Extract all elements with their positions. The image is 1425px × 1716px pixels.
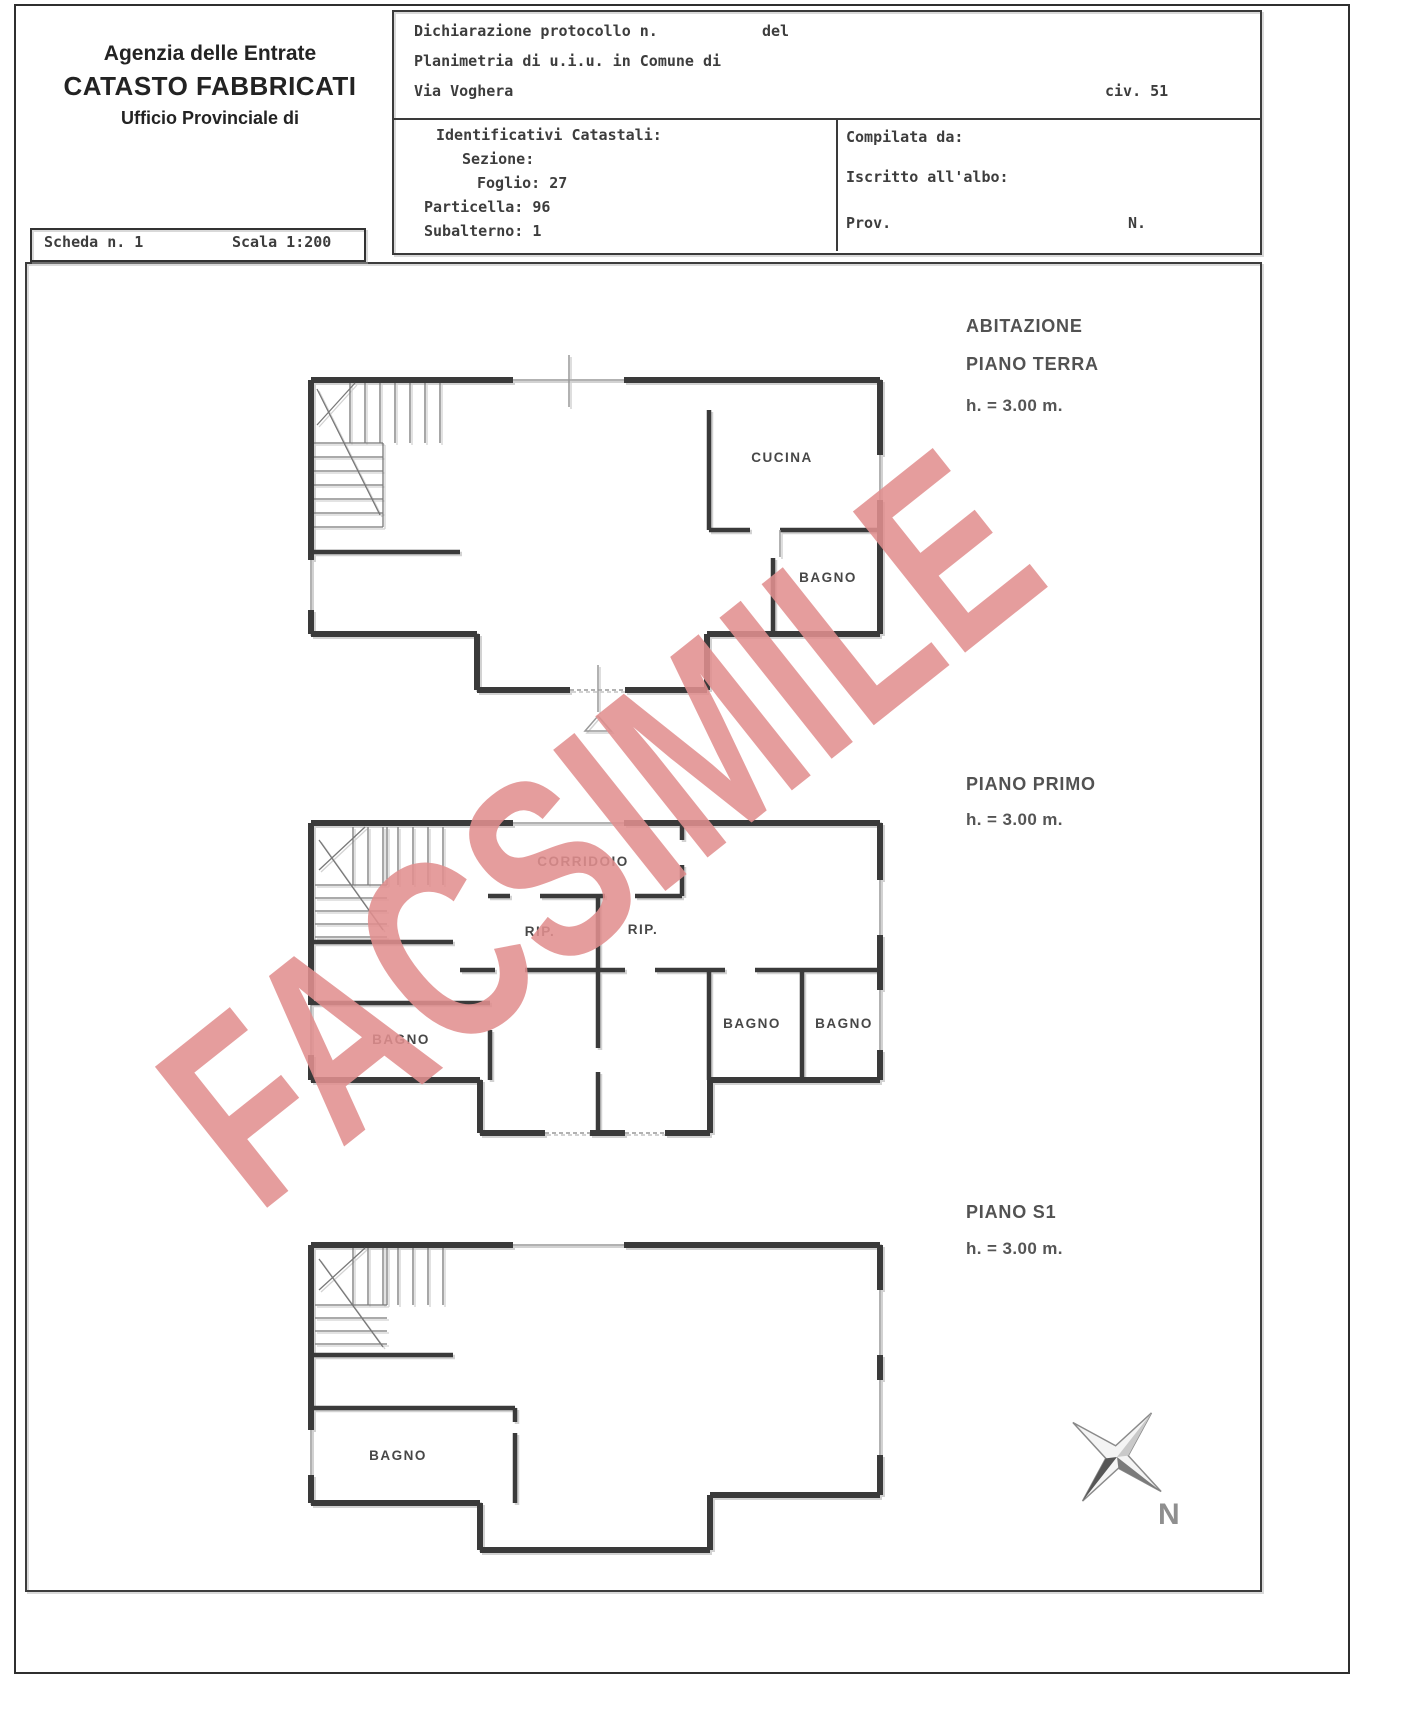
floor-title-primo: PIANO PRIMO h. = 3.00 m. bbox=[966, 774, 1096, 830]
stairs-icon bbox=[314, 383, 440, 527]
scale-label: Scala 1:200 bbox=[232, 233, 331, 251]
piano-terra-height: h. = 3.00 m. bbox=[966, 396, 1099, 416]
street-value: Via Voghera bbox=[414, 82, 513, 100]
subalterno-field: Subalterno: 1 bbox=[424, 222, 541, 240]
room-label-bagno-s1: BAGNO bbox=[358, 1448, 438, 1463]
piano-terra-label: PIANO TERRA bbox=[966, 354, 1099, 375]
agency-header: Agenzia delle Entrate CATASTO FABBRICATI… bbox=[45, 42, 375, 129]
catasto-title: CATASTO FABBRICATI bbox=[45, 71, 375, 102]
floor-title-s1: PIANO S1 h. = 3.00 m. bbox=[966, 1202, 1063, 1259]
piano-s1-height: h. = 3.00 m. bbox=[966, 1239, 1063, 1259]
room-label-cucina: CUCINA bbox=[742, 450, 822, 465]
sezione-field: Sezione: bbox=[462, 150, 534, 168]
scheda-number: Scheda n. 1 bbox=[44, 233, 143, 251]
particella-field: Particella: 96 bbox=[424, 198, 550, 216]
stairs-icon bbox=[315, 1248, 443, 1347]
abitazione-label: ABITAZIONE bbox=[966, 316, 1099, 337]
piano-primo-height: h. = 3.00 m. bbox=[966, 810, 1096, 830]
prov-label: Prov. bbox=[846, 214, 891, 232]
piano-s1-label: PIANO S1 bbox=[966, 1202, 1063, 1223]
n-label: N. bbox=[1128, 214, 1146, 232]
protocol-label: Dichiarazione protocollo n. bbox=[414, 22, 658, 40]
iscritto-albo-label: Iscritto all'albo: bbox=[846, 168, 1009, 186]
civic-number: civ. 51 bbox=[1105, 82, 1168, 100]
floor-title-terra: ABITAZIONE PIANO TERRA h. = 3.00 m. bbox=[966, 316, 1099, 416]
foglio-field: Foglio: 27 bbox=[477, 174, 567, 192]
form-vertical-divider bbox=[836, 120, 838, 251]
cadastral-document-page: Agenzia delle Entrate CATASTO FABBRICATI… bbox=[0, 0, 1425, 1716]
piano-primo-label: PIANO PRIMO bbox=[966, 774, 1096, 795]
room-label-bagno-primo-mid: BAGNO bbox=[712, 1016, 792, 1031]
del-label: del bbox=[762, 22, 789, 40]
agency-name: Agenzia delle Entrate bbox=[45, 42, 375, 66]
room-label-bagno-primo-right: BAGNO bbox=[804, 1016, 884, 1031]
floor-plan-s1 bbox=[295, 1235, 895, 1565]
compilata-da-label: Compilata da: bbox=[846, 128, 963, 146]
planimetria-label: Planimetria di u.i.u. in Comune di bbox=[414, 52, 721, 70]
north-label: N bbox=[1158, 1498, 1180, 1532]
catasto-identifiers-title: Identificativi Catastali: bbox=[436, 126, 662, 144]
provincial-office-label: Ufficio Provinciale di bbox=[45, 108, 375, 129]
form-horizontal-divider bbox=[392, 118, 1260, 120]
